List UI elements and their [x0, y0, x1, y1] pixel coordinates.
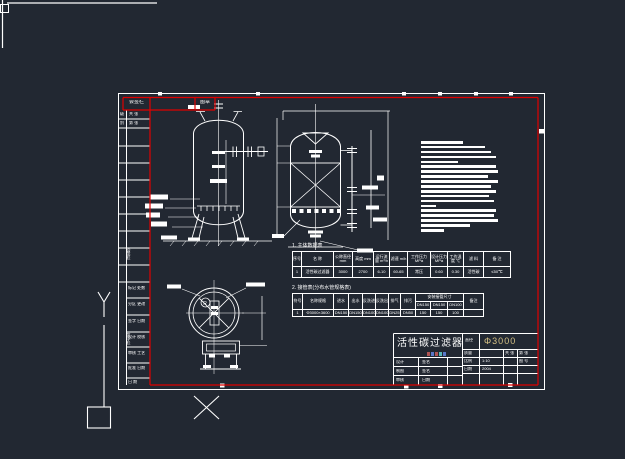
table-cell: DN150	[334, 310, 349, 317]
table-cell: 1	[293, 267, 302, 278]
tb-cell-date-label: 日期	[464, 367, 472, 371]
table-cell: DN50	[401, 310, 416, 317]
table-header-cell: 反洗出	[376, 294, 389, 310]
table-cell: 3000	[334, 267, 353, 278]
table-cell: DN100	[363, 310, 376, 317]
tb-cell-sheet-no: 第 张	[519, 351, 528, 355]
note-line	[421, 156, 496, 159]
sign-row: 设计 校核	[128, 335, 149, 339]
note-line	[421, 170, 498, 173]
table-header-cell: 工作压力 MPa	[408, 252, 431, 267]
table-cell: 100	[448, 310, 464, 317]
table-cell: 1	[293, 310, 303, 317]
tb-cell-design-sign: 签名	[422, 360, 430, 364]
note-line	[421, 151, 491, 154]
cad-viewport[interactable]: R 会签栏 图章 级 共 张 别 第 张 会签栏 签字栏 标记 处数 分区 更改…	[0, 0, 625, 459]
note-line	[421, 224, 470, 227]
tb-cell-dwg-no: 图 号	[519, 359, 528, 363]
tb-cell-sheets: 共 张	[505, 351, 514, 355]
table-header-cell: 运行流量 m³/h	[374, 252, 390, 267]
micro-color-text	[427, 352, 447, 356]
color-dash	[431, 352, 434, 356]
table-header-cell: 排污	[401, 294, 416, 310]
tb-cell-check-sign: 日期	[422, 378, 430, 382]
table-cell: 150	[431, 310, 448, 317]
note-line	[421, 185, 491, 188]
table-header-cell: 名 称	[302, 252, 334, 267]
technical-notes-block	[421, 141, 498, 234]
note-line	[421, 161, 458, 164]
table-header-cell: 备 注	[484, 252, 511, 267]
table-cell: 150	[416, 310, 431, 317]
sign-row: 分区 更改	[128, 302, 149, 306]
header-strip-cell-1: 会签栏	[124, 100, 149, 109]
table-cell: DN100	[376, 310, 389, 317]
note-line	[421, 229, 444, 232]
spec-label: 直径	[465, 338, 473, 342]
table2-title: 2. 接管表(分布水管规格表)	[292, 286, 351, 291]
sign-col-c2r2: 第 张	[129, 121, 138, 125]
sign-row: 审核 工艺	[128, 351, 149, 355]
table-cell: 活性碳过滤器	[302, 267, 334, 278]
table-cell: ≤50℃	[484, 267, 511, 278]
tb-cell-weight: 质量	[464, 351, 472, 355]
note-line	[421, 190, 496, 193]
table-cell: 活性碳	[464, 267, 484, 278]
tb-cell-design: 设计	[396, 360, 404, 364]
table-header-cell: 滤速 m/h	[390, 252, 408, 267]
table-cell: 6-10	[374, 267, 390, 278]
color-dash	[443, 352, 446, 356]
tb-cell-draft: 制图	[396, 369, 404, 373]
table-cell: DN25	[389, 310, 401, 317]
note-line	[421, 180, 498, 183]
table-header-cell: DN150	[431, 302, 448, 310]
sign-col-c1r1: 级	[120, 112, 124, 116]
sign-row: 标记 处数	[128, 286, 149, 290]
note-line	[421, 146, 485, 149]
sign-col-vertical-label-upper: 会签栏	[127, 248, 131, 274]
table-header-cell: 反洗进	[363, 294, 376, 310]
table-header-cell: 滤 料	[464, 252, 484, 267]
table-header-cell: 安装接管尺寸	[416, 294, 464, 302]
table-header-cell: 公称直径 mm	[334, 252, 353, 267]
note-line	[421, 200, 494, 203]
note-line	[421, 209, 496, 212]
table-cell: 60-65	[390, 267, 408, 278]
note-line	[421, 165, 496, 168]
table-cell: 0.60	[431, 267, 448, 278]
table-cell: DN150	[349, 310, 363, 317]
header-strip-cell-2: 图章	[196, 100, 214, 109]
table-header-cell: DN150	[416, 302, 431, 310]
sign-col-c2r1: 共 张	[129, 112, 138, 116]
table-cell	[464, 310, 484, 317]
color-dash	[435, 352, 438, 356]
tb-cell-scale-value: 1:10	[482, 359, 490, 363]
note-line	[421, 214, 494, 217]
table-header-cell: 序号	[293, 252, 302, 267]
nozzle-table: 符号名称规格进水出水反洗进反洗出排气排污安装接管尺寸备注DN150DN150DN…	[292, 293, 484, 317]
table1-title: 1. 主体数据表	[292, 244, 323, 249]
note-line	[421, 175, 488, 178]
sign-row: 日 期	[128, 380, 149, 384]
sign-col-c1r2: 别	[120, 121, 124, 125]
table-header-cell: 名称规格	[303, 294, 334, 310]
note-line	[421, 219, 498, 222]
annotation-layer: 会签栏 图章 级 共 张 别 第 张 会签栏 签字栏 标记 处数 分区 更改 签…	[0, 0, 625, 459]
tb-cell-draft-sign: 签名	[422, 369, 430, 373]
color-dash	[427, 352, 430, 356]
color-dash	[439, 352, 442, 356]
table-cell: 常压	[408, 267, 431, 278]
table-header-cell: 进水	[334, 294, 349, 310]
table-header-cell: 排气	[389, 294, 401, 310]
sign-row: 批准 日期	[128, 366, 149, 370]
table-header-cell: DN100	[448, 302, 464, 310]
drawing-title: 活性碳过滤器	[397, 339, 463, 349]
table-header-cell: 备注	[464, 294, 484, 310]
note-line	[421, 141, 463, 144]
tb-cell-date-value: 2004	[482, 367, 491, 371]
tb-cell-check: 审核	[396, 378, 404, 382]
table-header-cell: 工作温度 ℃	[448, 252, 464, 267]
table-header-cell: 设计压力 MPa	[431, 252, 448, 267]
table-cell: 0.30	[448, 267, 464, 278]
table-header-cell: 符号	[293, 294, 303, 310]
tb-cell-scale-label: 比例	[464, 359, 472, 363]
table-cell: 2700	[353, 267, 374, 278]
table-header-cell: 出水	[349, 294, 363, 310]
spec-value: Φ3000	[484, 337, 516, 346]
sign-row: 签字 日期	[128, 319, 149, 323]
main-data-table: 序号名 称公称直径 mm高度 mm运行流量 m³/h滤速 m/h工作压力 MPa…	[292, 251, 511, 278]
note-line	[421, 195, 489, 198]
note-line	[421, 205, 436, 208]
table-cell: Φ3000×3600	[303, 310, 334, 317]
table-header-cell: 高度 mm	[353, 252, 374, 267]
